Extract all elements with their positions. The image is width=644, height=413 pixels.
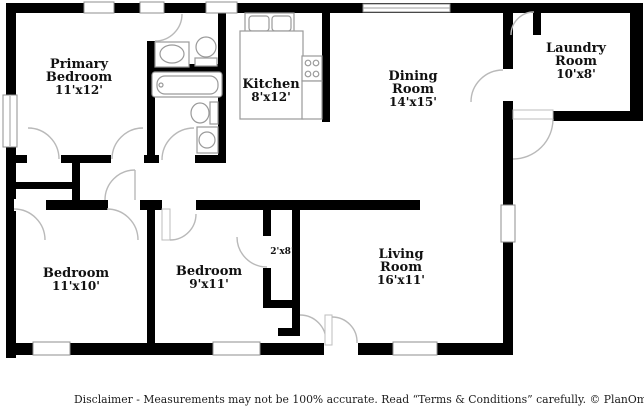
bathtub bbox=[152, 72, 222, 97]
kitchen-counter bbox=[240, 31, 303, 119]
door-arc-bedroom-left-entry bbox=[107, 209, 138, 240]
door-arc-hallway bbox=[105, 170, 135, 200]
closet-dims: 2'x8' bbox=[270, 247, 293, 257]
label-bedroom-middle: Bedroom 9'x11' bbox=[176, 264, 243, 291]
label-primary-bedroom: Primary Bedroom 11'x12' bbox=[46, 57, 113, 97]
ensuite-toilet bbox=[195, 37, 217, 66]
label-dining-room: Dining Room 14'x15' bbox=[388, 69, 437, 109]
door-arc-bedroom-left-closet bbox=[14, 209, 45, 240]
bedroom-middle-dims: 9'x11' bbox=[189, 277, 229, 291]
hall-toilet bbox=[191, 102, 218, 124]
living-room-dims: 16'x11' bbox=[377, 273, 425, 287]
kitchen-counter-right bbox=[302, 81, 322, 119]
bathroom-fixtures bbox=[152, 37, 222, 153]
door-arc-laundry bbox=[513, 119, 553, 159]
dining-room-dims: 14'x15' bbox=[389, 95, 437, 109]
kitchen-stove bbox=[302, 56, 322, 81]
floor-plan: Primary Bedroom 11'x12' Kitchen 8'x12' D… bbox=[0, 0, 644, 413]
label-living-room: Living Room 16'x11' bbox=[377, 247, 425, 287]
disclaimer-bar: Disclaimer - Measurements may not be 100… bbox=[74, 393, 644, 406]
label-laundry-room: Laundry Room 10'x8' bbox=[546, 41, 606, 81]
bedroom-left-dims: 11'x10' bbox=[52, 279, 100, 293]
disclaimer-text: Disclaimer - Measurements may not be 100… bbox=[74, 393, 586, 406]
door-arc-ensuite-bath bbox=[155, 14, 182, 41]
door-arc-laundry-niche bbox=[511, 12, 534, 35]
brand-copyright: © PlanOmatic bbox=[590, 393, 644, 406]
door-arc-bedroom-middle-entry bbox=[170, 214, 196, 240]
kitchen-dims: 8'x12' bbox=[251, 90, 291, 104]
laundry-room-dims: 10'x8' bbox=[556, 67, 596, 81]
door-arc-entry-closet bbox=[300, 315, 326, 341]
primary-bedroom-dims: 11'x12' bbox=[55, 83, 103, 97]
ensuite-vanity-sink bbox=[155, 42, 189, 67]
floor-plan-svg: Primary Bedroom 11'x12' Kitchen 8'x12' D… bbox=[0, 0, 644, 413]
label-bedroom-left: Bedroom 11'x10' bbox=[43, 266, 110, 293]
door-arc-front-entry bbox=[332, 317, 357, 343]
door-arc-dining-laundry bbox=[471, 70, 503, 102]
hall-vanity-sink bbox=[197, 127, 218, 153]
